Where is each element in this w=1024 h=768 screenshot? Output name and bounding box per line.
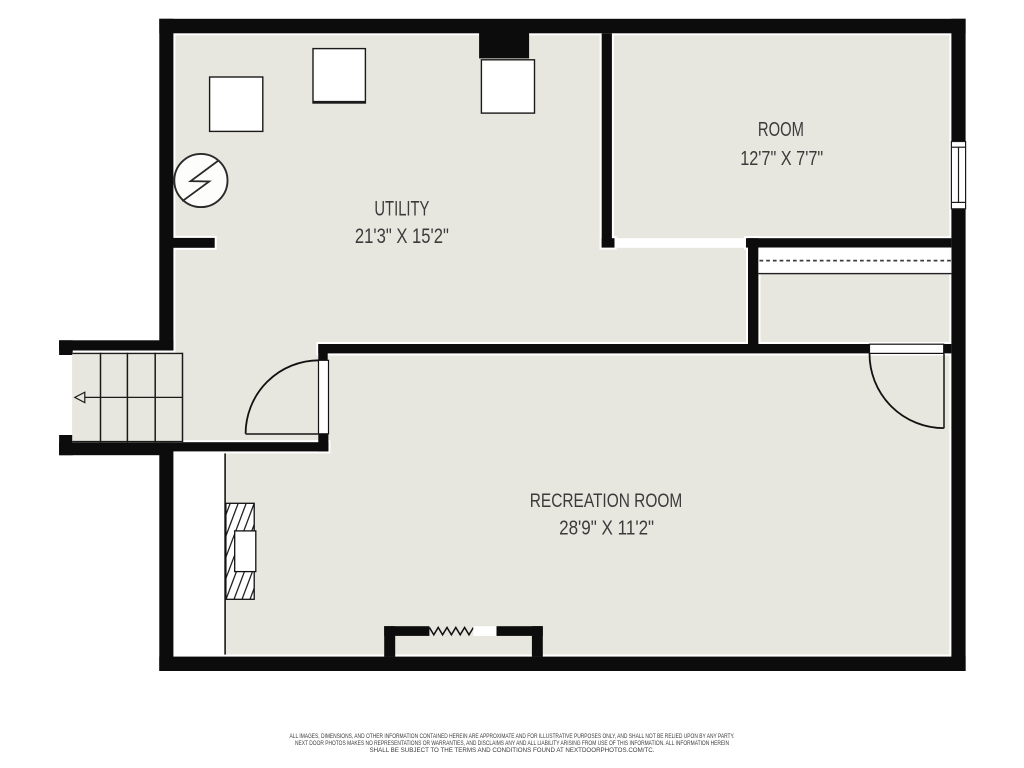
- svg-text:RECREATION ROOM: RECREATION ROOM: [530, 490, 683, 512]
- svg-text:21'3" X 15'2": 21'3" X 15'2": [355, 225, 449, 248]
- svg-text:12'7" X 7'7": 12'7" X 7'7": [740, 147, 823, 170]
- svg-text:NEXT DOOR PHOTOS MAKES NO REPR: NEXT DOOR PHOTOS MAKES NO REPRESENTATION…: [295, 740, 729, 747]
- svg-text:SHALL BE SUBJECT TO THE TERMS: SHALL BE SUBJECT TO THE TERMS AND CONDIT…: [370, 747, 655, 754]
- svg-text:UTILITY: UTILITY: [374, 198, 429, 221]
- svg-text:28'9" X 11'2": 28'9" X 11'2": [559, 518, 654, 540]
- svg-text:ROOM: ROOM: [758, 118, 804, 141]
- svg-text:ALL IMAGES, DIMENSIONS, AND OT: ALL IMAGES, DIMENSIONS, AND OTHER INFORM…: [290, 733, 735, 740]
